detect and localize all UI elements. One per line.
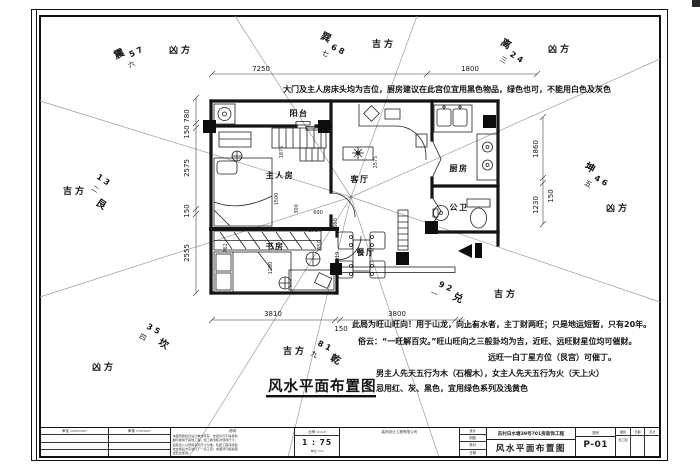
tb-check-label: 审核: [128, 429, 135, 433]
sector-qian-trigram: 乾: [328, 351, 343, 367]
tb-unit-value: mm: [318, 449, 324, 453]
tb-approve-cell: 审定 APPROVED: [41, 428, 109, 456]
sector-kan-numeral: 四: [138, 332, 148, 342]
sector-kun-stars: 4 6: [593, 173, 610, 188]
master-dresser: [219, 132, 251, 161]
sector-xun-stars: 6 8: [330, 42, 347, 56]
sector-dui-trigram: 兑: [451, 290, 465, 306]
tb-check-cell: 审核 CHECKED: [109, 428, 171, 456]
sector-kun-trigram: 坤: [583, 159, 598, 175]
dim-right-2: 150: [547, 189, 555, 202]
dim-top-2: 1800: [461, 65, 479, 73]
tb-unit-label: 单位: [311, 449, 317, 453]
dim-int-1280: 1280: [268, 262, 274, 275]
kitchen-sink: [434, 105, 472, 132]
sector-dui-numeral: 一: [429, 289, 439, 299]
sector-zhen-stars: 5 7: [128, 45, 144, 59]
room-label-kitchen: 厨房: [450, 163, 469, 173]
tb-scale-sub: SCALE: [316, 430, 326, 434]
tb-right-cells: 图别 施工图 日期 页次: [616, 428, 659, 456]
sector-li-luck: 凶方: [548, 43, 572, 55]
sector-dui-luck: 吉方: [494, 288, 518, 300]
sector-li-stars: 2 4: [508, 50, 525, 65]
living-counter: [359, 104, 427, 160]
top-note: 大门及主人房床头均为吉位，厨房建议在此宫位宜用黑色物品，绿色也可，不能用白色及灰…: [283, 84, 611, 94]
tb-rc2-top: 日期: [631, 428, 645, 436]
sector-xun-trigram: 巽: [319, 30, 333, 45]
dim-int-300: 300: [294, 204, 300, 214]
tb-rc1-top: 图别: [616, 428, 630, 436]
title-block: 审定 APPROVED 审核 CHECKED 说明 本图纸版权归设计单位所有，未…: [40, 427, 660, 457]
dim-bottom-3: 3800: [388, 310, 406, 318]
tb-rc1-bottom: 施工图: [616, 436, 630, 442]
tb-project-name: 员村白水塘39号701房装饰工程: [487, 428, 576, 440]
sector-zhen-numeral: 六: [126, 59, 136, 70]
sector-li-trigram: 离: [498, 36, 513, 52]
sector-gen: 1 3 二 艮: [82, 172, 121, 213]
sector-gen-trigram: 艮: [94, 197, 110, 213]
sector-xun-luck: 吉方: [372, 38, 396, 50]
dim-left-5: 2555: [183, 244, 191, 262]
study-desk: [279, 252, 334, 290]
dim-bottom-2: 150: [334, 325, 347, 333]
room-label-study: 书房: [266, 241, 285, 251]
dim-left-2: 150: [183, 125, 191, 138]
dim-left-4: 150: [183, 204, 191, 217]
tb-approve-label: 审定: [62, 429, 69, 433]
sector-kun-numeral: 五: [583, 179, 593, 189]
sector-gen-luck: 吉方: [63, 185, 87, 197]
room-label-master: 主人房: [266, 170, 295, 180]
dim-int-1500: 1500: [274, 193, 280, 206]
tb-scale-label: 比例: [308, 430, 315, 434]
sector-li: 离 2 4 三: [492, 36, 530, 73]
dim-top-1: 7250: [252, 65, 270, 73]
sector-kan: 3 5 坎 四: [138, 321, 175, 354]
scan-smudge: [692, 0, 700, 7]
tb-rc2-bottom: [631, 436, 645, 438]
bottom-note-3: 远旺一白丁星方位（艮宫）可催丁。: [488, 352, 616, 362]
dim-int-650: 650: [317, 240, 323, 250]
tb-staff-date: 日期: [460, 449, 486, 456]
tb-check-sub: CHECKED: [136, 429, 151, 433]
sector-dui: 9 2 兑 一: [429, 278, 466, 309]
sector-zhen-trigram: 震: [112, 46, 127, 62]
sector-zhen: 震 5 7 六: [112, 39, 148, 74]
sector-dui-stars: 9 2: [437, 280, 453, 294]
dim-right-1: 1860: [532, 140, 540, 158]
master-bed: [214, 158, 272, 226]
sector-zhen-luck: 凶方: [169, 44, 193, 56]
bath-basin: [433, 206, 449, 221]
tb-drawing-name: 风水平面布置图: [487, 440, 576, 455]
sector-kun: 坤 4 6 五: [576, 159, 614, 196]
dim-right-3: 1230: [532, 196, 540, 214]
dim-bottom-1: 3810: [264, 310, 282, 318]
sector-kun-luck: 凶方: [606, 202, 630, 214]
tb-notes-cell: 说明 本图纸版权归设计单位所有，未经许可不得复制 翻印或用于其他工程；施工前须核…: [171, 428, 296, 456]
sector-xun-numeral: 七: [320, 48, 330, 59]
room-label-living: 客厅: [350, 174, 370, 184]
bottom-note-5: 忌用红、灰、黑色，宜用绿色系列及浅黄色: [376, 383, 528, 393]
room-label-dining: 餐厅: [356, 247, 376, 257]
sector-qian-luck: 吉方: [283, 345, 307, 357]
tb-staff-cell: 设计 制图 校对 日期: [460, 428, 487, 456]
kitchen-stove: [477, 134, 498, 180]
caption-underline: [266, 395, 376, 397]
entry-door: [458, 243, 482, 258]
sector-qian-numeral: 九: [309, 349, 319, 360]
hall-cabinet: [398, 210, 408, 250]
dim-left-1: 780: [183, 109, 191, 122]
toilet: [467, 199, 490, 228]
sector-kan-luck: 凶方: [92, 361, 116, 373]
drawing-canvas: 7250 1800 780 150 2575 150 2555 1860 150…: [0, 0, 700, 465]
room-labels: 阳台 主人房 客厅 厨房 公卫 书房 餐厅: [266, 108, 469, 257]
sector-xun: 巽 6 8 七: [313, 30, 349, 65]
tb-rc3-top: 页次: [645, 428, 659, 436]
tb-rc3-bottom: [645, 436, 659, 438]
dim-int-2575: 2575: [373, 156, 379, 169]
dim-left-3: 2575: [183, 159, 191, 177]
sector-kan-trigram: 坎: [156, 336, 172, 353]
bottom-note-2: 俗云：“一旺解百灾。”旺山旺向之三般卦均为吉，近旺、远旺财星位均可催财。: [357, 336, 637, 346]
bottom-note-1: 此局为旺山旺向！用于山龙，向上有水者，主丁财两旺；只是地运短暂，只有20年。: [352, 319, 651, 330]
tb-approve-sub: APPROVED: [70, 429, 86, 433]
tb-company-cell: 装饰设计工程有限公司: [340, 428, 460, 456]
sector-qian: 8 1 乾 九: [309, 338, 345, 370]
tb-drawing-no: P-01: [576, 437, 615, 450]
dim-int-762: 762: [223, 243, 229, 253]
dim-int-600b: 600: [333, 218, 339, 228]
washing-machine: [214, 104, 235, 124]
room-label-balcony: 阳台: [290, 108, 309, 118]
tb-notes-line: 纸配合使用。: [171, 451, 295, 455]
dim-int-1875: 1875: [279, 146, 285, 159]
tb-no-label: 图号: [576, 428, 615, 437]
tb-number-cell: 图号 P-01: [576, 428, 616, 456]
sector-gen-numeral: 二: [90, 184, 100, 195]
sector-li-numeral: 三: [498, 55, 508, 65]
tb-staff-proof: 校对: [460, 441, 486, 448]
sector-kan-stars: 3 5: [145, 322, 162, 337]
drawing-caption: 风水平面布置图: [268, 377, 377, 395]
room-label-bath: 公卫: [450, 203, 469, 212]
sector-qian-stars: 8 1: [316, 339, 333, 353]
dim-int-600a: 600: [313, 210, 323, 216]
tb-project-cell: 员村白水塘39号701房装饰工程 风水平面布置图: [487, 428, 577, 456]
entry-wall: [337, 267, 455, 273]
dimension-lines: [193, 71, 546, 323]
tb-scale-value: 1 : 75: [295, 436, 339, 447]
tb-company: 装饰设计工程有限公司: [340, 428, 459, 435]
floor-plan-walls: [211, 101, 498, 293]
bottom-note-4: 男主人先天五行为木（石榴木），女主人先天五行为火（天上火）: [376, 368, 604, 378]
feng-shui-plan-sheet: 7250 1800 780 150 2575 150 2555 1860 150…: [0, 0, 700, 465]
tb-scale-cell: 比例 SCALE 1 : 75 单位 mm: [295, 428, 340, 456]
tb-staff-draft: 制图: [460, 434, 486, 441]
